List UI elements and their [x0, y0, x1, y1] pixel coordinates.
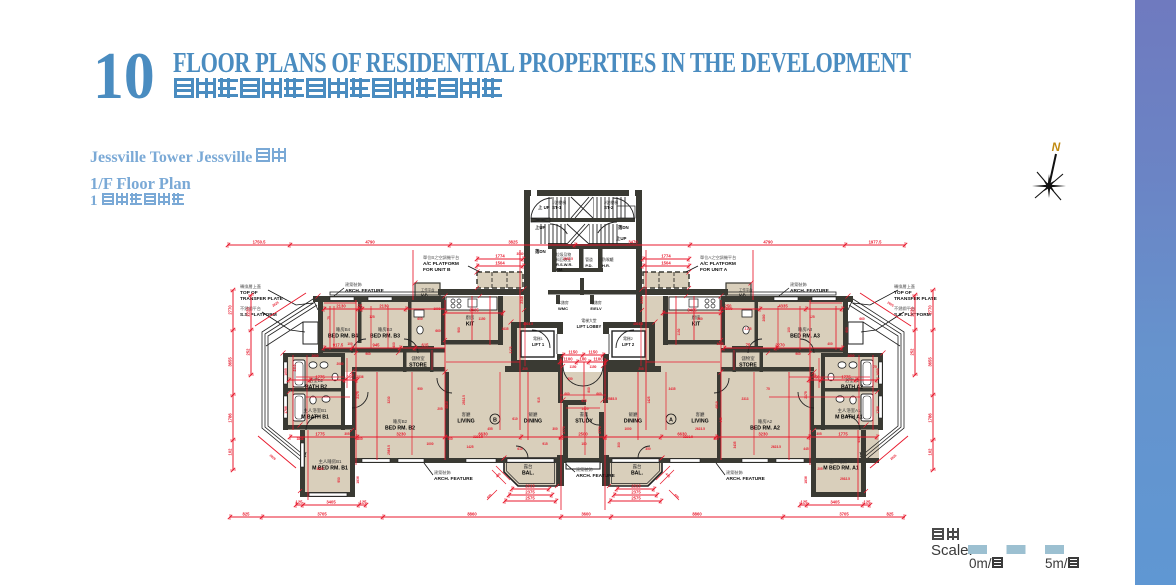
- svg-text:DINING: DINING: [524, 419, 542, 425]
- svg-text:1150: 1150: [570, 365, 577, 369]
- svg-text:BAL.: BAL.: [631, 471, 644, 477]
- svg-text:BATH B2: BATH B2: [305, 385, 327, 391]
- svg-text:960: 960: [457, 327, 461, 333]
- svg-text:3435: 3435: [687, 308, 697, 313]
- svg-text:STUDY: STUDY: [575, 419, 593, 425]
- svg-text:客廳: 客廳: [462, 411, 471, 418]
- svg-text:102: 102: [928, 448, 933, 456]
- svg-text:1150: 1150: [568, 350, 578, 355]
- svg-text:8860: 8860: [467, 512, 477, 517]
- svg-text:單位B之空調機平台: 單位B之空調機平台: [423, 254, 459, 261]
- svg-text:350: 350: [645, 447, 651, 451]
- svg-text:2600: 2600: [311, 354, 318, 358]
- svg-text:75: 75: [873, 365, 877, 369]
- svg-text:2270: 2270: [775, 343, 785, 348]
- svg-text:TRANSFER PLATE: TRANSFER PLATE: [894, 296, 938, 302]
- svg-text:100: 100: [347, 342, 353, 346]
- svg-text:U.P.: U.P.: [739, 293, 746, 297]
- svg-text:FOR UNIT A: FOR UNIT A: [700, 267, 728, 273]
- svg-text:3600: 3600: [581, 512, 591, 517]
- svg-text:ARCH. FEATURE: ARCH. FEATURE: [434, 476, 474, 482]
- svg-text:2175: 2175: [744, 327, 751, 331]
- svg-text:950: 950: [337, 477, 341, 483]
- svg-text:1635: 1635: [501, 327, 508, 331]
- svg-text:2175: 2175: [804, 391, 808, 399]
- svg-text:350: 350: [567, 377, 573, 381]
- svg-text:917.5: 917.5: [333, 343, 344, 348]
- svg-text:1836: 1836: [804, 476, 808, 484]
- svg-text:轉換層上蓋: 轉換層上蓋: [894, 283, 915, 290]
- svg-text:205: 205: [638, 367, 644, 371]
- svg-text:電梯大堂: 電梯大堂: [581, 318, 596, 323]
- svg-text:3705: 3705: [317, 512, 327, 517]
- svg-text:LIFT 1: LIFT 1: [532, 342, 545, 347]
- svg-text:主人睡房A1: 主人睡房A1: [830, 458, 853, 465]
- svg-text:落DN: 落DN: [535, 248, 546, 255]
- svg-text:LIFT LOBBY: LIFT LOBBY: [577, 324, 602, 329]
- svg-text:600: 600: [486, 493, 493, 500]
- svg-text:消防喉轆: 消防喉轆: [598, 257, 613, 262]
- svg-text:A/C PLATFORM: A/C PLATFORM: [423, 261, 459, 267]
- svg-text:100: 100: [558, 437, 564, 441]
- svg-text:945: 945: [373, 343, 381, 348]
- svg-text:建築裝飾: 建築裝飾: [434, 469, 451, 476]
- svg-text:125: 125: [360, 500, 368, 505]
- svg-text:2375: 2375: [631, 490, 641, 495]
- svg-text:1774: 1774: [495, 254, 505, 259]
- svg-text:2500: 2500: [578, 432, 588, 437]
- svg-text:1977.5: 1977.5: [869, 240, 882, 245]
- svg-text:2348: 2348: [520, 296, 524, 304]
- svg-text:FOR UNIT B: FOR UNIT B: [423, 267, 451, 273]
- svg-text:2932.5: 2932.5: [462, 395, 466, 405]
- svg-text:ST-1: ST-1: [552, 205, 562, 210]
- svg-text:N: N: [1052, 140, 1061, 154]
- svg-text:125: 125: [809, 315, 815, 319]
- svg-text:WMC: WMC: [558, 306, 568, 311]
- svg-text:E/ELV: E/ELV: [590, 306, 602, 311]
- svg-text:125: 125: [296, 500, 304, 505]
- svg-text:252: 252: [910, 348, 915, 356]
- svg-text:ST-2: ST-2: [604, 205, 614, 210]
- svg-text:600: 600: [845, 327, 849, 333]
- svg-text:2130: 2130: [336, 304, 346, 309]
- svg-text:TOP OF: TOP OF: [894, 290, 912, 296]
- svg-text:睡房B4: 睡房B4: [336, 326, 351, 333]
- svg-text:ARCH. FEATURE: ARCH. FEATURE: [790, 288, 830, 294]
- svg-text:205: 205: [522, 367, 528, 371]
- svg-text:LIVING: LIVING: [691, 419, 708, 425]
- svg-text:600: 600: [417, 317, 423, 321]
- svg-text:445: 445: [803, 447, 809, 451]
- svg-text:610: 610: [517, 447, 523, 451]
- svg-text:建築裝飾: 建築裝飾: [726, 469, 743, 476]
- svg-text:2932.5: 2932.5: [840, 477, 850, 481]
- svg-text:BED RM. B3: BED RM. B3: [370, 334, 400, 340]
- svg-text:960: 960: [795, 352, 801, 356]
- svg-text:4810: 4810: [715, 401, 719, 409]
- svg-text:A/C PLATFORM: A/C PLATFORM: [700, 261, 736, 267]
- svg-text:上UP: 上UP: [616, 235, 627, 242]
- svg-text:工作平台: 工作平台: [739, 287, 753, 292]
- svg-text:400: 400: [447, 437, 453, 441]
- svg-text:2220: 2220: [246, 307, 251, 317]
- svg-text:300: 300: [617, 442, 621, 448]
- svg-text:儲物室: 儲物室: [741, 355, 755, 362]
- svg-text:U.P.: U.P.: [421, 293, 428, 297]
- svg-text:2220: 2220: [910, 307, 915, 317]
- svg-text:455: 455: [857, 437, 861, 443]
- svg-text:3230: 3230: [396, 432, 406, 437]
- svg-text:ARCH. FEATURE: ARCH. FEATURE: [726, 476, 766, 482]
- svg-text:飯廳: 飯廳: [529, 411, 538, 418]
- svg-text:1504: 1504: [661, 261, 671, 266]
- svg-text:BAL.: BAL.: [522, 471, 535, 477]
- svg-text:915: 915: [581, 399, 587, 403]
- svg-text:915: 915: [537, 397, 541, 403]
- svg-text:電梯2: 電梯2: [623, 336, 633, 341]
- svg-text:睡房B2: 睡房B2: [393, 418, 408, 425]
- svg-text:2223.5: 2223.5: [473, 435, 483, 439]
- svg-text:1786: 1786: [284, 406, 288, 414]
- svg-text:3405: 3405: [830, 500, 840, 505]
- svg-text:1836: 1836: [296, 437, 303, 441]
- svg-text:1836: 1836: [356, 375, 363, 379]
- svg-text:1655: 1655: [284, 368, 288, 376]
- svg-text:M BED RM. A1: M BED RM. A1: [823, 466, 859, 472]
- svg-text:2600: 2600: [847, 354, 854, 358]
- svg-text:2313: 2313: [525, 484, 535, 489]
- svg-text:1150: 1150: [479, 317, 486, 321]
- svg-text:2770: 2770: [562, 426, 566, 434]
- svg-text:1425: 1425: [647, 396, 651, 403]
- svg-text:廚房: 廚房: [466, 314, 475, 321]
- svg-text:RM.: RM.: [556, 267, 563, 272]
- svg-text:2770: 2770: [598, 426, 602, 434]
- svg-text:1000: 1000: [433, 307, 440, 311]
- svg-text:客廳: 客廳: [696, 411, 705, 418]
- svg-text:建築裝飾: 建築裝飾: [790, 281, 807, 288]
- svg-text:上 UP: 上 UP: [538, 204, 550, 211]
- svg-text:2575: 2575: [631, 496, 641, 501]
- svg-text:飯廳: 飯廳: [629, 411, 638, 418]
- svg-text:1774: 1774: [661, 254, 671, 259]
- svg-text:1000: 1000: [426, 442, 433, 446]
- svg-text:上UP: 上UP: [535, 224, 546, 231]
- svg-text:205: 205: [817, 467, 823, 471]
- svg-text:1775: 1775: [838, 432, 848, 437]
- svg-text:610: 610: [512, 417, 518, 421]
- svg-text:H.R.: H.R.: [602, 263, 610, 268]
- svg-text:BATH A2: BATH A2: [841, 385, 863, 391]
- svg-text:950: 950: [417, 387, 423, 391]
- svg-text:ARCH. FEATURE: ARCH. FEATURE: [576, 473, 616, 479]
- svg-text:1635: 1635: [716, 342, 723, 346]
- svg-text:125: 125: [801, 500, 809, 505]
- svg-text:915: 915: [542, 442, 548, 446]
- svg-text:書房: 書房: [580, 411, 589, 418]
- svg-text:3405: 3405: [326, 500, 336, 505]
- svg-text:BED RM. B4: BED RM. B4: [328, 334, 358, 340]
- svg-text:1150: 1150: [677, 328, 681, 335]
- svg-text:102: 102: [228, 448, 233, 456]
- svg-text:1000: 1000: [624, 427, 631, 431]
- svg-text:DINING: DINING: [624, 419, 642, 425]
- svg-text:100: 100: [580, 357, 588, 362]
- svg-text:660: 660: [859, 317, 865, 321]
- svg-text:露台: 露台: [633, 463, 642, 470]
- svg-text:1786: 1786: [228, 413, 233, 423]
- svg-text:落DN: 落DN: [618, 224, 629, 231]
- svg-text:1100: 1100: [563, 357, 573, 362]
- svg-text:3705: 3705: [839, 512, 849, 517]
- svg-text:300: 300: [552, 427, 558, 431]
- svg-text:75: 75: [327, 316, 331, 320]
- svg-text:M BATH B1: M BATH B1: [301, 415, 329, 421]
- svg-text:825: 825: [243, 512, 251, 517]
- svg-text:2080: 2080: [336, 362, 343, 366]
- svg-text:1786: 1786: [876, 406, 880, 414]
- svg-text:2080: 2080: [762, 314, 766, 321]
- svg-text:305: 305: [816, 432, 822, 436]
- svg-text:1836: 1836: [356, 476, 360, 484]
- svg-text:2932.5: 2932.5: [563, 257, 573, 261]
- svg-text:455: 455: [487, 427, 493, 431]
- svg-text:3435: 3435: [469, 308, 479, 313]
- svg-text:3230: 3230: [387, 396, 391, 403]
- svg-text:A: A: [669, 418, 673, 424]
- svg-text:轉換層上蓋: 轉換層上蓋: [240, 283, 261, 290]
- svg-text:400: 400: [827, 342, 833, 346]
- svg-text:1100: 1100: [593, 357, 603, 362]
- svg-text:1786: 1786: [928, 413, 933, 423]
- svg-text:3655: 3655: [928, 357, 933, 367]
- svg-text:960: 960: [365, 352, 371, 356]
- svg-text:LIVING: LIVING: [457, 419, 474, 425]
- svg-text:B: B: [493, 418, 497, 424]
- svg-text:睡房A2: 睡房A2: [758, 418, 773, 425]
- svg-text:8860: 8860: [692, 512, 702, 517]
- svg-text:2623.5: 2623.5: [695, 427, 705, 431]
- svg-text:2223.5: 2223.5: [683, 435, 693, 439]
- svg-text:400: 400: [713, 437, 719, 441]
- svg-text:305: 305: [344, 432, 350, 436]
- svg-text:2623.5: 2623.5: [771, 445, 781, 449]
- svg-text:75: 75: [603, 437, 607, 441]
- svg-text:STORE: STORE: [739, 363, 757, 369]
- svg-text:4503.5: 4503.5: [523, 322, 533, 326]
- svg-text:露台: 露台: [524, 463, 533, 470]
- svg-text:STORE: STORE: [409, 363, 427, 369]
- svg-text:1150: 1150: [590, 365, 597, 369]
- svg-text:660: 660: [596, 392, 602, 396]
- svg-text:205: 205: [437, 407, 443, 411]
- svg-text:3435: 3435: [668, 387, 675, 391]
- svg-text:2313: 2313: [631, 484, 641, 489]
- svg-text:1150: 1150: [588, 350, 598, 355]
- svg-text:2825: 2825: [889, 453, 897, 461]
- svg-text:2375: 2375: [525, 490, 535, 495]
- svg-text:建築裝飾: 建築裝飾: [576, 466, 593, 473]
- svg-text:2348: 2348: [640, 296, 644, 304]
- svg-text:單位A之空調機平台: 單位A之空調機平台: [700, 254, 736, 261]
- svg-text:800: 800: [587, 387, 591, 393]
- svg-text:1655: 1655: [876, 368, 880, 376]
- svg-text:125: 125: [864, 500, 872, 505]
- svg-text:252: 252: [246, 348, 251, 356]
- svg-text:660: 660: [435, 329, 441, 333]
- svg-text:445: 445: [495, 472, 502, 479]
- svg-text:4790: 4790: [365, 240, 375, 245]
- svg-text:825: 825: [887, 512, 895, 517]
- svg-text:LIFT 2: LIFT 2: [622, 342, 635, 347]
- svg-text:800: 800: [357, 437, 363, 441]
- svg-text:960: 960: [697, 317, 703, 321]
- svg-text:電梯1: 電梯1: [533, 336, 543, 341]
- svg-text:電錶房: 電錶房: [590, 300, 602, 305]
- svg-text:75: 75: [350, 373, 354, 377]
- svg-text:445: 445: [719, 417, 723, 423]
- svg-text:1425: 1425: [466, 445, 473, 449]
- svg-text:4790: 4790: [763, 240, 773, 245]
- svg-text:445: 445: [664, 472, 671, 479]
- svg-text:3435: 3435: [733, 441, 737, 448]
- svg-text:1504: 1504: [495, 261, 505, 266]
- svg-text:1000: 1000: [725, 307, 732, 311]
- svg-text:3470: 3470: [628, 240, 638, 245]
- svg-text:100: 100: [581, 442, 587, 446]
- svg-text:2770: 2770: [928, 305, 933, 315]
- svg-text:管道: 管道: [585, 257, 593, 262]
- svg-text:ARCH. FEATURE: ARCH. FEATURE: [345, 288, 385, 294]
- svg-text:75: 75: [358, 304, 363, 309]
- svg-text:P.D.: P.D.: [585, 263, 592, 268]
- svg-text:125: 125: [369, 315, 375, 319]
- svg-text:3230: 3230: [316, 467, 323, 471]
- svg-text:儲物室: 儲物室: [411, 355, 425, 362]
- svg-text:1425: 1425: [581, 407, 588, 411]
- svg-text:2770: 2770: [228, 305, 233, 315]
- svg-text:660: 660: [564, 392, 570, 396]
- svg-text:4810: 4810: [445, 401, 449, 409]
- svg-text:水錶房: 水錶房: [557, 300, 569, 305]
- svg-text:75: 75: [746, 343, 751, 348]
- svg-text:75: 75: [812, 373, 816, 377]
- svg-text:600: 600: [673, 493, 680, 500]
- svg-text:2175: 2175: [356, 391, 360, 399]
- svg-text:75: 75: [766, 387, 770, 391]
- svg-text:3825: 3825: [508, 240, 518, 245]
- svg-text:主人浴室A1: 主人浴室A1: [838, 407, 861, 414]
- svg-text:1775: 1775: [315, 432, 325, 437]
- svg-text:2585.5: 2585.5: [387, 445, 391, 455]
- svg-text:工作平台: 工作平台: [421, 287, 435, 292]
- svg-text:2825: 2825: [269, 453, 277, 461]
- svg-text:400: 400: [392, 342, 396, 348]
- svg-text:3655: 3655: [228, 357, 233, 367]
- svg-text:615: 615: [422, 343, 430, 348]
- svg-text:3230: 3230: [758, 432, 768, 437]
- svg-text:建築裝飾: 建築裝飾: [345, 281, 362, 288]
- svg-text:4335: 4335: [778, 304, 788, 309]
- svg-text:2175: 2175: [509, 346, 513, 353]
- svg-text:100: 100: [787, 327, 791, 333]
- svg-text:2313: 2313: [293, 364, 297, 371]
- svg-text:2585.5: 2585.5: [607, 397, 617, 401]
- svg-text:3040: 3040: [516, 252, 523, 256]
- svg-text:睡房B3: 睡房B3: [378, 326, 393, 333]
- svg-text:KIT: KIT: [466, 322, 475, 328]
- svg-text:BED RM. A3: BED RM. A3: [790, 334, 820, 340]
- svg-text:主人睡房B1: 主人睡房B1: [319, 458, 342, 465]
- svg-text:4503.5: 4503.5: [633, 322, 643, 326]
- svg-text:2575: 2575: [525, 496, 535, 501]
- svg-text:KIT: KIT: [692, 322, 701, 328]
- svg-text:2313: 2313: [741, 397, 748, 401]
- svg-text:1750.5: 1750.5: [253, 240, 266, 245]
